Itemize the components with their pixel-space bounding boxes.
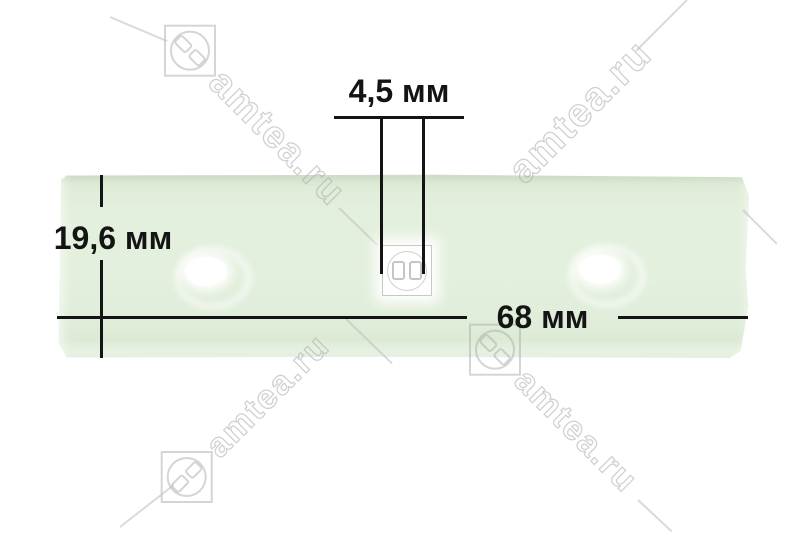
socket-logo-icon	[387, 251, 427, 291]
lattice-line	[119, 484, 174, 527]
product-dimension-diagram: amtea.ru amtea.ru amtea.ru amtea.ru 4,5 …	[0, 0, 800, 537]
dim-line-length-left	[57, 316, 467, 319]
lattice-line	[635, 0, 687, 52]
dim-line-length-right	[618, 316, 748, 319]
dim-line-hole-horizontal	[334, 116, 464, 119]
dim-label-strip-length: 68 мм	[467, 300, 618, 334]
lattice-line	[742, 209, 777, 244]
amtea-socket-logo-icon	[161, 451, 213, 503]
lattice-line	[110, 16, 168, 42]
lattice-line	[637, 499, 672, 532]
watermark-text: amtea.ru	[500, 31, 661, 192]
dim-label-hole-diameter: 4,5 мм	[324, 74, 474, 108]
strip-hole-right	[579, 255, 621, 284]
watermark-text: amtea.ru	[507, 361, 646, 500]
dim-line-width-lower	[100, 260, 103, 358]
dim-line-width-upper	[100, 175, 103, 207]
amtea-socket-logo-icon	[164, 25, 216, 77]
watermark-top-right: amtea.ru	[500, 31, 661, 192]
strip-hole-left	[185, 257, 227, 286]
dim-label-strip-width: 19,6 мм	[33, 221, 193, 255]
dim-line-hole-right-tick	[422, 116, 425, 274]
dim-line-hole-left-tick	[380, 116, 383, 274]
